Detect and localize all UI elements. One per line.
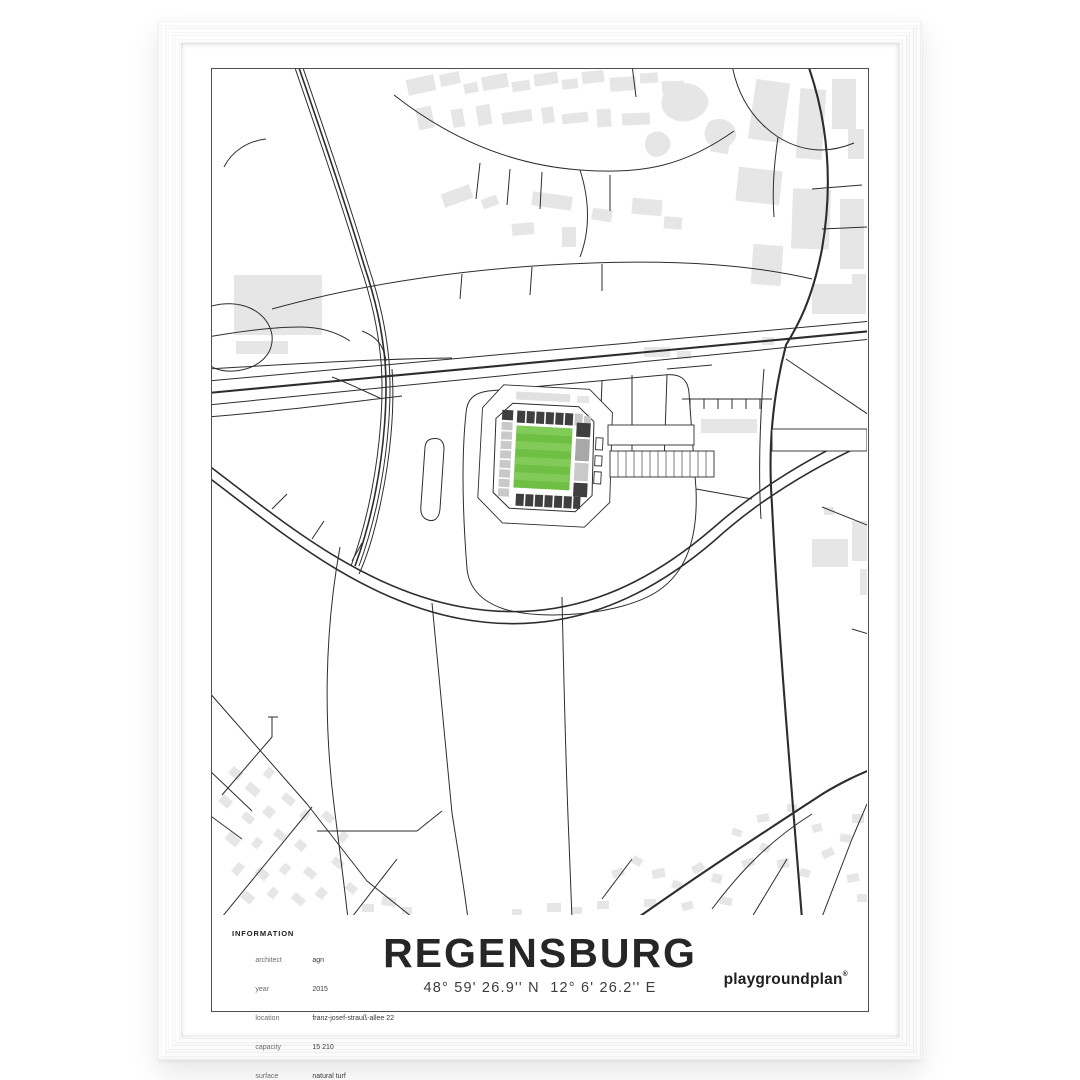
picture-frame: INFORMATION architectagn year2015 locati… [158, 20, 922, 1060]
poster-title: REGENSBURG [212, 933, 868, 974]
parking [608, 419, 867, 477]
brand-logo: playgroundplan® [724, 971, 848, 989]
info-label: capacity [255, 1043, 312, 1053]
brand-text: playgroundplan [724, 971, 843, 988]
info-row: capacity15 210 [232, 1033, 394, 1062]
stadium-map [212, 69, 867, 915]
info-value: natural turf [312, 1073, 345, 1080]
info-row: locationfranz-josef-strauß-allee 22 [232, 1004, 394, 1033]
frame-grain-top [158, 20, 922, 43]
pitch [513, 426, 572, 491]
info-label: location [255, 1014, 312, 1024]
info-row: surfacenatural turf [232, 1062, 394, 1080]
info-value: franz-josef-strauß-allee 22 [312, 1015, 394, 1022]
mat-board: INFORMATION architectagn year2015 locati… [181, 43, 899, 1037]
stadium [477, 384, 616, 529]
info-value: 15 210 [312, 1044, 333, 1051]
poster-wall: INFORMATION architectagn year2015 locati… [0, 0, 1080, 1080]
poster-sheet: INFORMATION architectagn year2015 locati… [211, 68, 869, 1012]
registered-mark: ® [843, 971, 848, 978]
frame-grain-left [158, 20, 181, 1060]
info-label: surface [255, 1072, 312, 1080]
frame-grain-right [899, 20, 922, 1060]
